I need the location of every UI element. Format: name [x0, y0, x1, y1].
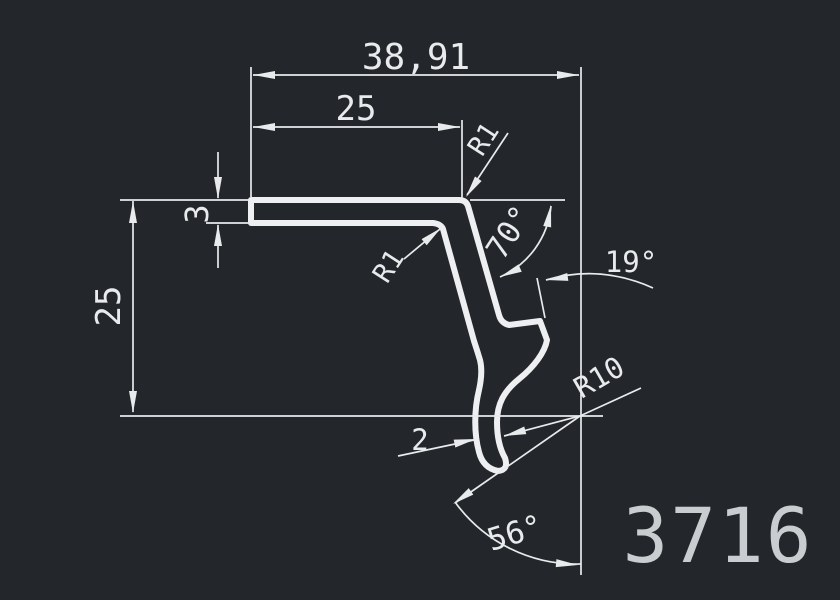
dim-overall-height-label: 25: [89, 286, 129, 327]
arrowhead: [253, 123, 275, 131]
part-number-label: 3716: [622, 491, 813, 580]
dim-overall-width-label: 38,91: [362, 37, 470, 78]
dim-hook-wall-thickness-label: 2: [411, 423, 428, 457]
arrowhead: [253, 71, 275, 79]
dim-lip-angle-label: 19°: [605, 245, 657, 279]
arrowhead: [214, 177, 222, 199]
dim-inner-corner-radius-label: R1: [367, 244, 411, 288]
dim-flange-thickness-label: 3: [178, 204, 216, 223]
arrowhead: [463, 177, 482, 200]
dim-inner-corner-radius: R1: [367, 225, 444, 289]
arrowhead: [498, 264, 521, 280]
arrowhead: [129, 391, 137, 413]
extrusion-drawing: 38,91 25 3 25 R1 R1: [0, 0, 840, 600]
dim-top-flange-length: 25: [253, 89, 462, 198]
arrowhead: [557, 71, 579, 79]
dim-hook-wall-thickness: 2: [398, 423, 526, 457]
arrowhead: [543, 204, 555, 227]
dim-overall-width: 38,91: [251, 37, 581, 575]
dim-flange-thickness: 3: [120, 152, 249, 268]
cad-drawing-canvas: 38,91 25 3 25 R1 R1: [0, 0, 840, 600]
dim-leg-angle-label: 70°: [479, 199, 540, 266]
dim-hook-end-angle-label: 56°: [483, 508, 547, 559]
arrowhead: [451, 488, 474, 507]
arrowhead: [214, 224, 222, 246]
arrowhead: [438, 123, 460, 131]
dim-top-corner-radius: R1: [462, 117, 508, 199]
dim-hook-radius: R10: [504, 350, 641, 436]
arrowhead: [129, 201, 137, 223]
extension-line: [537, 278, 545, 318]
dim-top-corner-radius-label: R1: [462, 117, 506, 161]
dim-lip-angle: 19°: [537, 245, 657, 318]
dim-top-flange-length-label: 25: [336, 89, 377, 129]
dim-hook-end-angle: 56°: [451, 416, 581, 569]
